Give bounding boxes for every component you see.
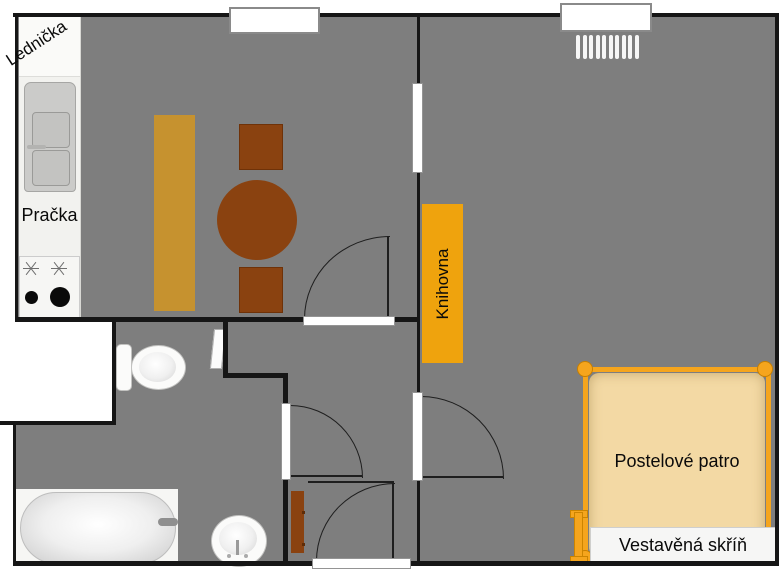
window-kitchen xyxy=(229,7,320,34)
bathtub-faucet xyxy=(158,518,178,526)
shelf-hinge xyxy=(302,543,305,546)
wall-wc-bottom xyxy=(223,373,288,378)
built-in-wardrobe: Vestavěná skříň xyxy=(590,527,776,563)
washer-handle xyxy=(27,145,46,149)
mainroom-door-opening xyxy=(412,392,423,481)
burner-cross-icon xyxy=(23,261,39,277)
toilet-bowl-inner xyxy=(139,352,176,382)
wall-bath-lower xyxy=(283,477,288,565)
dining-table xyxy=(217,180,297,260)
washer-label: Pračka xyxy=(19,205,80,226)
entrance-door-opening xyxy=(312,558,411,569)
kitchen-bench xyxy=(154,115,195,311)
outside-notch xyxy=(0,322,116,425)
chair-bottom xyxy=(239,267,283,313)
sink-tap-dot xyxy=(244,554,248,558)
radiator xyxy=(576,35,639,59)
bathroom-door-leaf xyxy=(290,475,362,477)
bathroom-door-opening xyxy=(281,403,291,480)
bed-post-top-left xyxy=(577,361,593,377)
wall-right xyxy=(775,13,779,565)
bookshelf-label: Knihovna xyxy=(433,248,453,319)
pass-through-opening xyxy=(412,83,423,173)
burner-large xyxy=(50,287,70,307)
washer-drawer-top xyxy=(32,112,70,148)
kitchen-door-leaf xyxy=(387,236,389,318)
wall-left-lower xyxy=(13,421,16,565)
floor-plan: Knihovna Postelové patro Vestavěná skříň… xyxy=(0,0,783,569)
shelf-hinge xyxy=(302,511,305,514)
wall-bath-upper xyxy=(283,373,288,405)
sink-faucet xyxy=(236,540,239,555)
bathtub xyxy=(20,492,176,564)
burner-small xyxy=(25,291,38,304)
burner-cross-icon xyxy=(51,261,67,277)
washing-machine xyxy=(24,82,76,192)
chair-top xyxy=(239,124,283,170)
bed-post-top-right xyxy=(757,361,773,377)
entrance-door-leaf xyxy=(392,483,394,560)
vestibule-line xyxy=(308,481,394,483)
toilet-tank xyxy=(116,344,132,391)
wall-wc-right xyxy=(223,320,228,378)
loft-bed-label: Postelové patro xyxy=(583,451,771,472)
window-mainroom xyxy=(560,3,652,32)
bookshelf: Knihovna xyxy=(422,204,463,363)
hallway-shelf xyxy=(291,491,304,553)
washer-drawer-bottom xyxy=(32,150,70,186)
mainroom-door-leaf xyxy=(421,476,503,478)
wall-top xyxy=(13,13,779,17)
kitchen-door-opening xyxy=(303,316,395,326)
wardrobe-label: Vestavěná skříň xyxy=(591,528,775,562)
sink-tap-dot xyxy=(227,554,231,558)
